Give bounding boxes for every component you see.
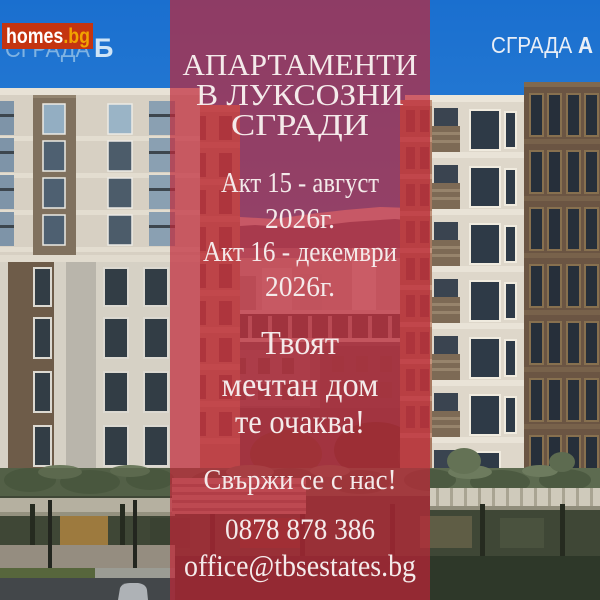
svg-text:Акт 16 - декември: Акт 16 - декември [203,236,397,268]
svg-text:СГРАДИ: СГРАДИ [231,107,369,142]
svg-text:Твоят: Твоят [261,325,339,362]
svg-text:те очаква!: те очаква! [235,404,365,441]
svg-text:мечтан дом: мечтан дом [222,367,379,404]
svg-text:СГРАДА А: СГРАДА А [491,32,593,58]
svg-text:2026г.: 2026г. [265,271,335,303]
svg-text:office@tbsestates.bg: office@tbsestates.bg [184,548,416,583]
svg-text:Б: Б [94,33,113,63]
svg-text:Акт 15 - август: Акт 15 - август [221,167,379,199]
svg-text:2026г.: 2026г. [265,203,335,235]
svg-text:0878 878 386: 0878 878 386 [225,513,375,546]
svg-text:Свържи се с нас!: Свържи се с нас! [204,464,397,496]
svg-text:homes.bg: homes.bg [6,25,90,48]
